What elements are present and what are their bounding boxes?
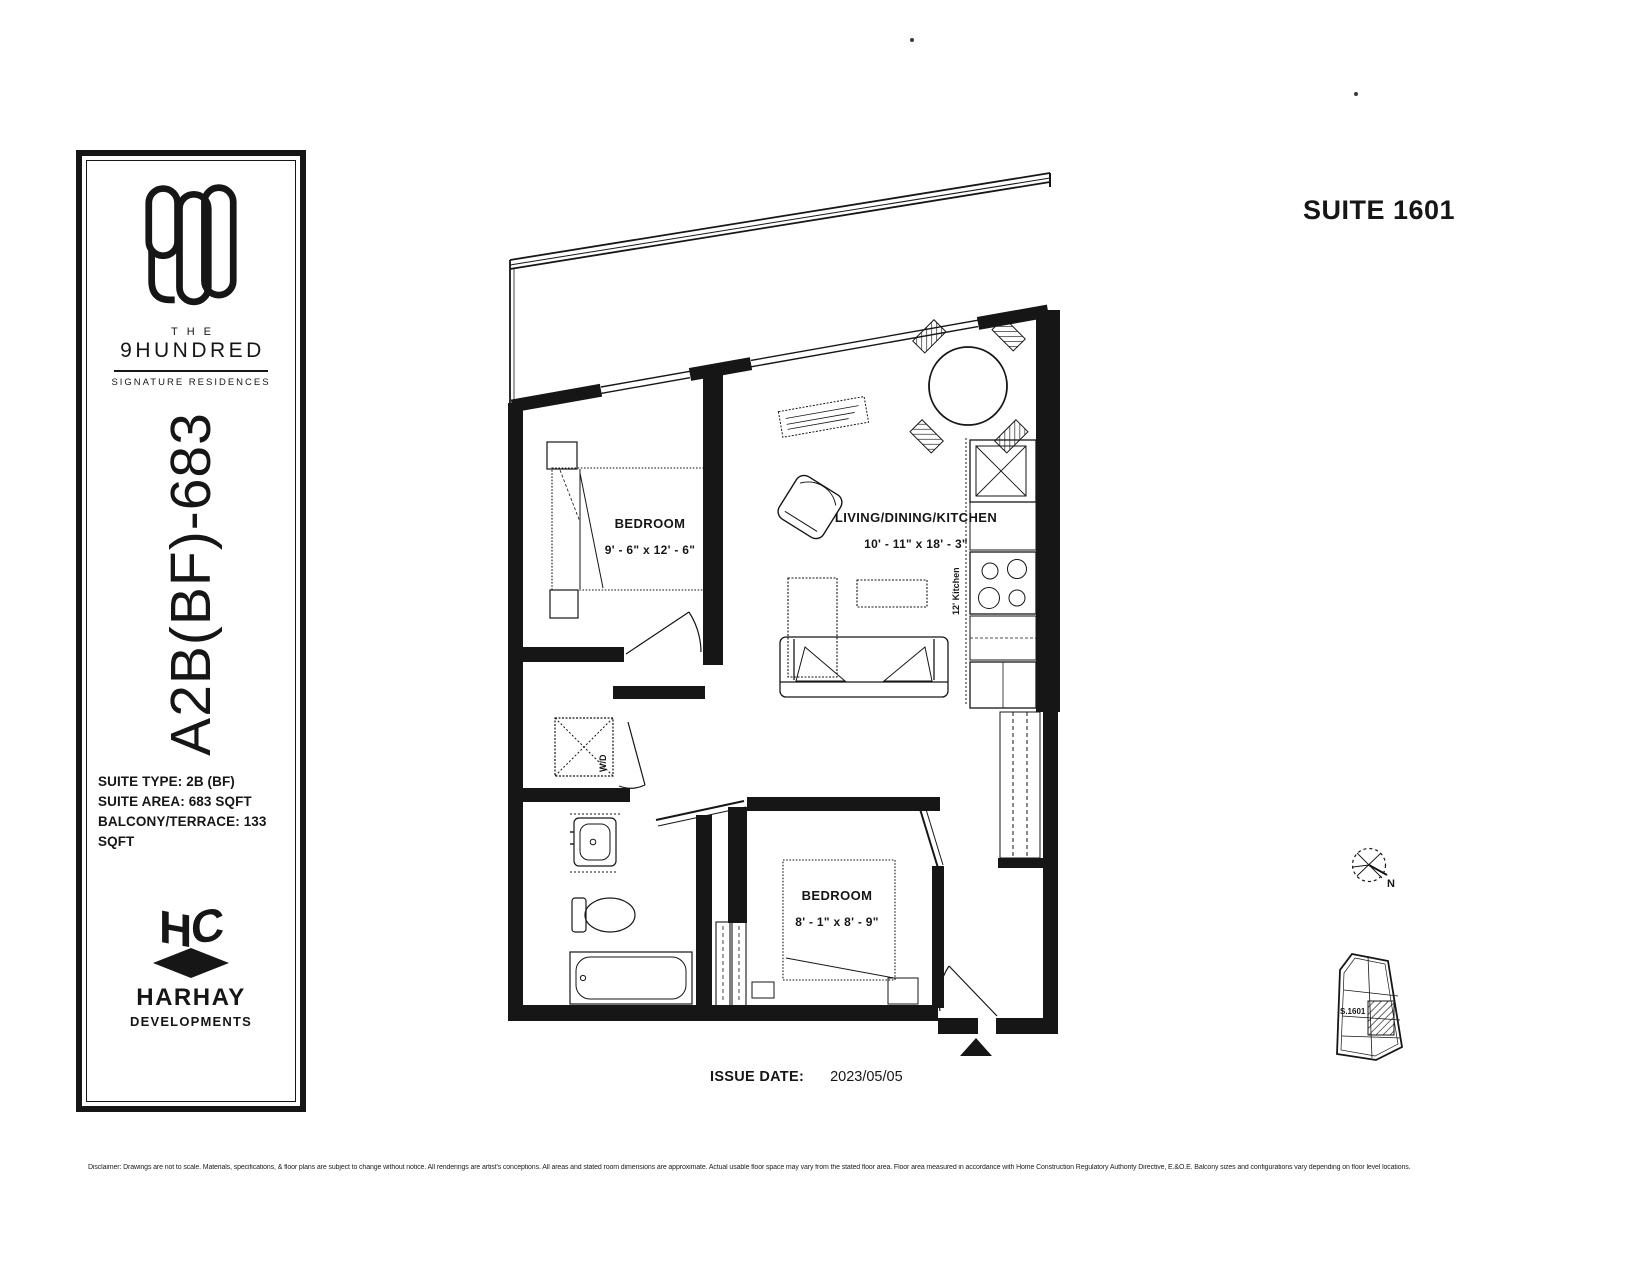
bedroom1-label: BEDROOM	[615, 516, 686, 531]
suite-area: SUITE AREA: 683 SQFT	[98, 792, 296, 812]
nine-hundred-logo-icon	[143, 180, 239, 320]
tv-console	[778, 397, 868, 438]
dining-set	[910, 318, 1028, 453]
living-dims: 10' - 11" x 18' - 3"	[864, 537, 968, 551]
suite-number-title: SUITE 1601	[1303, 195, 1455, 226]
bedroom2-furniture	[752, 860, 918, 1004]
bathroom-fixtures	[570, 814, 692, 1004]
compass-n-label: N	[1387, 878, 1395, 890]
compass-icon: N	[1345, 840, 1405, 900]
brand-name: 9HUNDRED	[82, 339, 300, 363]
sofa	[780, 637, 948, 697]
kitchen-label: 12' Kitchen	[951, 567, 961, 615]
disclaimer-text: Disclaimer: Drawings are not to scale. M…	[88, 1164, 1550, 1171]
entry-closet	[1000, 712, 1040, 858]
window-wall	[512, 311, 1048, 406]
monogram-h: H	[159, 900, 192, 957]
issue-date-value: 2023/05/05	[830, 1069, 903, 1085]
suite-type: SUITE TYPE: 2B (BF)	[98, 772, 296, 792]
issue-date-label: ISSUE DATE:	[710, 1069, 804, 1085]
scan-speck	[910, 38, 914, 42]
scan-speck	[1354, 92, 1358, 96]
walls	[508, 310, 1060, 1036]
plan-code: A2B(BF)-683	[158, 412, 224, 756]
balcony-railing	[510, 173, 1050, 403]
entry-marker	[960, 1038, 992, 1056]
keyplan-suite-label: S.1601	[1340, 1007, 1366, 1016]
brand-tagline: SIGNATURE RESIDENCES	[82, 377, 300, 388]
armchair	[775, 472, 846, 542]
kitchen	[966, 438, 1036, 708]
floorplan-drawing: BEDROOM 9' - 6" x 12' - 6" LIVING/DINING…	[500, 160, 1070, 1070]
coffee-table	[857, 580, 927, 607]
brand-rule	[114, 370, 268, 372]
sliding-doors	[716, 922, 746, 1006]
monogram-c: C	[191, 897, 224, 954]
developer-name: HARHAY	[82, 984, 300, 1012]
suite-balcony: BALCONY/TERRACE: 133 SQFT	[98, 812, 296, 852]
chaise	[788, 578, 837, 677]
keyplan-icon: S.1601	[1328, 948, 1418, 1068]
brand-the: THE	[82, 326, 300, 338]
brand-sidebar: THE 9HUNDRED SIGNATURE RESIDENCES A2B(BF…	[76, 150, 306, 1112]
bedroom1-dims: 9' - 6" x 12' - 6"	[605, 543, 696, 557]
bedroom2-label: BEDROOM	[802, 888, 873, 903]
harhay-monogram-icon: H C	[149, 886, 233, 982]
bedroom2-dims: 8' - 1" x 8' - 9"	[795, 915, 879, 929]
suite-info: SUITE TYPE: 2B (BF) SUITE AREA: 683 SQFT…	[98, 772, 296, 852]
living-label: LIVING/DINING/KITCHEN	[835, 510, 997, 525]
developer-subtitle: DEVELOPMENTS	[82, 1014, 300, 1029]
issue-date: ISSUE DATE:2023/05/05	[710, 1069, 903, 1085]
washer-dryer-label: W/D	[598, 754, 608, 772]
plan-code-area: A2B(BF)-683	[82, 394, 300, 774]
sheet: THE 9HUNDRED SIGNATURE RESIDENCES A2B(BF…	[0, 0, 1650, 1275]
